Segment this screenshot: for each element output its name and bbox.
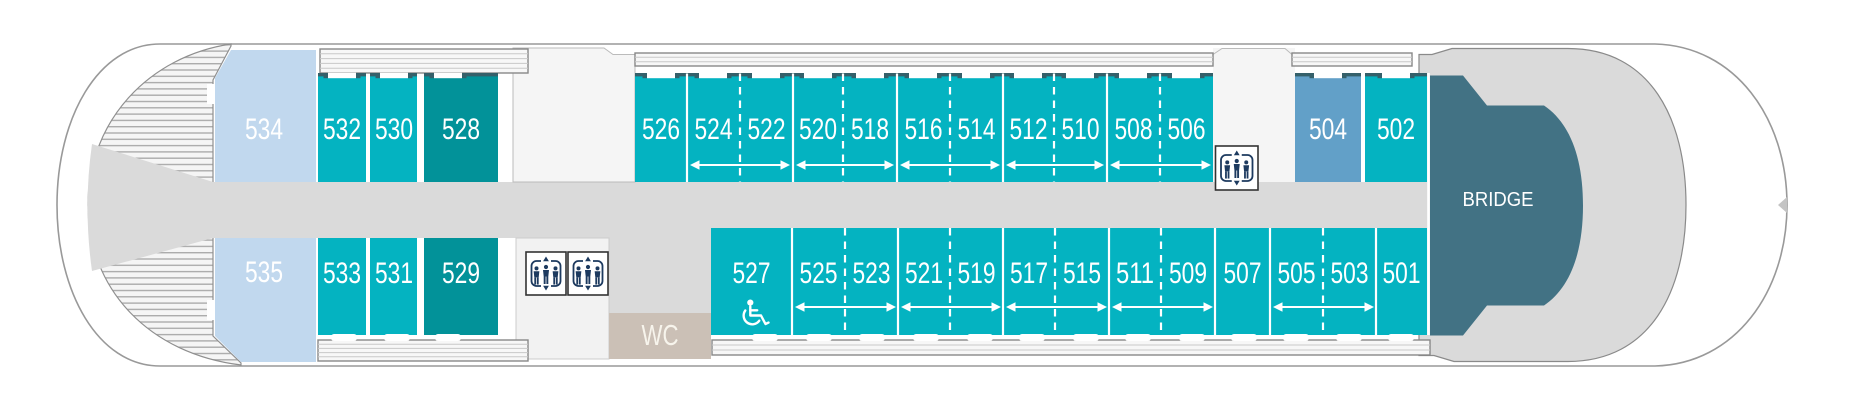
svg-text:520: 520 — [799, 113, 837, 146]
svg-text:506: 506 — [1168, 113, 1206, 146]
svg-text:505: 505 — [1278, 257, 1316, 290]
svg-text:504: 504 — [1309, 113, 1347, 146]
svg-text:503: 503 — [1331, 257, 1369, 290]
svg-text:521: 521 — [905, 257, 943, 290]
svg-text:529: 529 — [442, 257, 480, 290]
svg-text:510: 510 — [1062, 113, 1100, 146]
svg-text:531: 531 — [375, 257, 413, 290]
svg-text:508: 508 — [1115, 113, 1153, 146]
svg-text:527: 527 — [733, 257, 771, 290]
svg-text:534: 534 — [245, 113, 283, 146]
svg-text:528: 528 — [442, 113, 480, 146]
svg-text:BRIDGE: BRIDGE — [1463, 189, 1534, 211]
svg-text:WC: WC — [642, 320, 679, 352]
svg-text:535: 535 — [245, 256, 283, 289]
svg-text:515: 515 — [1063, 257, 1101, 290]
svg-text:514: 514 — [958, 113, 996, 146]
svg-text:518: 518 — [851, 113, 889, 146]
svg-text:523: 523 — [853, 257, 891, 290]
svg-text:512: 512 — [1010, 113, 1048, 146]
svg-text:524: 524 — [695, 113, 733, 146]
svg-text:533: 533 — [323, 257, 361, 290]
svg-text:501: 501 — [1383, 257, 1421, 290]
svg-text:522: 522 — [748, 113, 786, 146]
svg-text:519: 519 — [958, 257, 996, 290]
svg-text:517: 517 — [1010, 257, 1048, 290]
svg-text:516: 516 — [905, 113, 943, 146]
svg-text:530: 530 — [375, 113, 413, 146]
svg-text:507: 507 — [1224, 257, 1262, 290]
svg-text:511: 511 — [1116, 257, 1154, 290]
svg-text:532: 532 — [323, 113, 361, 146]
svg-text:502: 502 — [1377, 113, 1415, 146]
svg-text:526: 526 — [642, 113, 680, 146]
svg-text:509: 509 — [1169, 257, 1207, 290]
svg-text:525: 525 — [800, 257, 838, 290]
